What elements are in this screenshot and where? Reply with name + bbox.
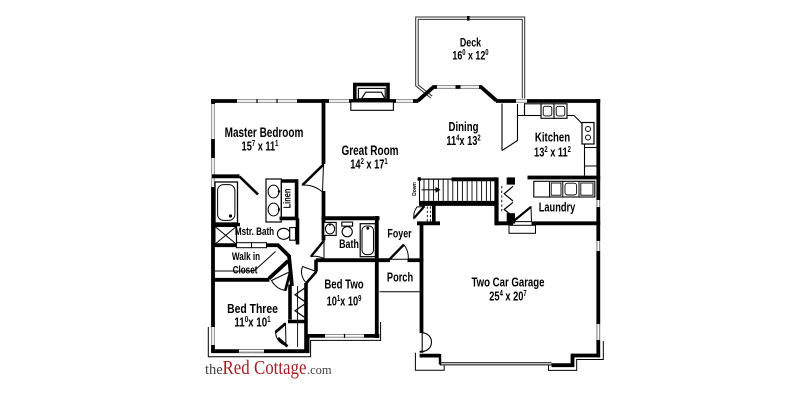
svg-text:Master Bedroom: Master Bedroom [225, 124, 304, 140]
svg-text:Linen: Linen [282, 189, 293, 209]
svg-text:Foyer: Foyer [387, 227, 411, 241]
svg-text:the: the [205, 362, 223, 378]
svg-text:114x 132: 114x 132 [446, 135, 480, 149]
svg-text:132 x 112: 132 x 112 [534, 146, 571, 160]
svg-text:Closet: Closet [233, 264, 258, 277]
svg-text:Down: Down [412, 182, 418, 196]
svg-text:Bed Three: Bed Three [227, 302, 278, 316]
svg-text:Bed Two: Bed Two [324, 278, 363, 292]
svg-text:Walk in: Walk in [232, 251, 260, 264]
svg-text:101x 109: 101x 109 [327, 295, 362, 309]
svg-text:110x 101: 110x 101 [234, 315, 270, 330]
svg-text:157 x 111: 157 x 111 [242, 140, 279, 154]
svg-text:Kitchen: Kitchen [535, 131, 570, 145]
svg-text:254 x 207: 254 x 207 [489, 290, 526, 304]
svg-text:Porch: Porch [387, 271, 413, 285]
svg-text:142 x 171: 142 x 171 [350, 158, 387, 172]
svg-text:Great Room: Great Room [341, 142, 398, 158]
svg-text:160 x 120: 160 x 120 [452, 49, 488, 63]
svg-text:Laundry: Laundry [539, 201, 576, 215]
svg-text:Deck: Deck [460, 36, 481, 50]
svg-text:.com: .com [307, 363, 332, 377]
svg-text:Two Car Garage: Two Car Garage [472, 276, 545, 290]
svg-text:Red Cottage: Red Cottage [223, 358, 307, 379]
svg-text:Mstr. Bath: Mstr. Bath [235, 226, 274, 239]
svg-text:Dining: Dining [449, 121, 479, 135]
svg-text:Bath: Bath [339, 238, 359, 252]
